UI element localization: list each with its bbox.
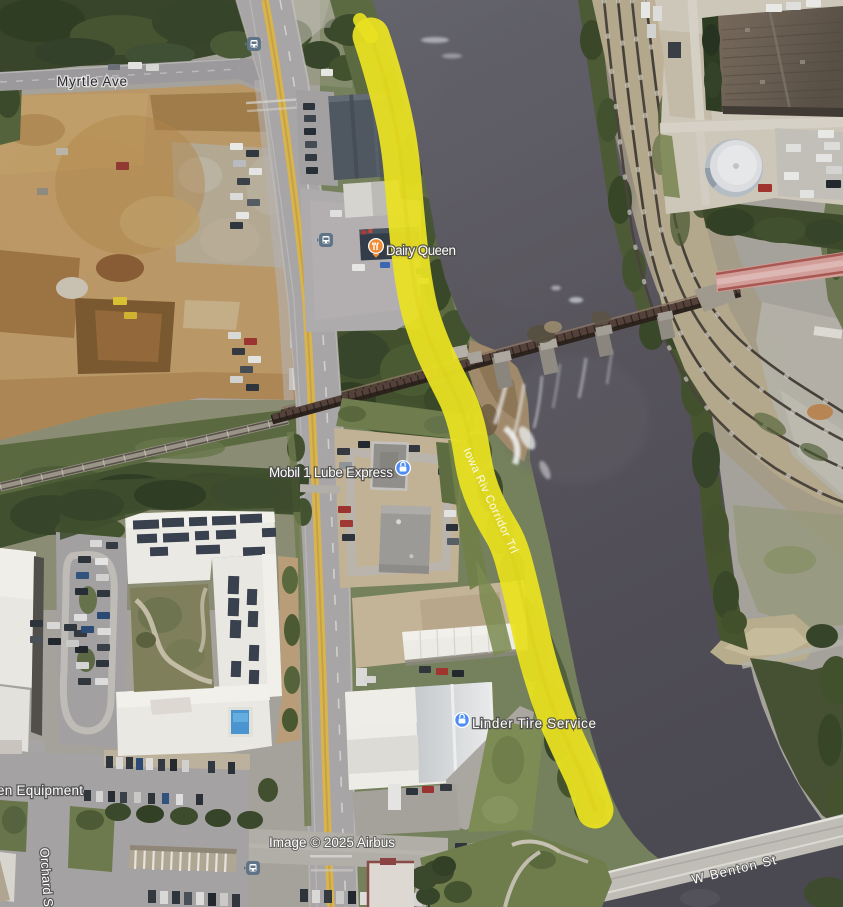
- svg-text:en Equipment: en Equipment: [0, 783, 83, 798]
- svg-text:Dairy Queen: Dairy Queen: [386, 243, 456, 258]
- svg-text:Myrtle Ave: Myrtle Ave: [57, 74, 127, 89]
- svg-text:Mobil 1 Lube Express: Mobil 1 Lube Express: [269, 465, 393, 480]
- svg-text:Image © 2025 Airbus: Image © 2025 Airbus: [269, 835, 395, 850]
- svg-text:Linder Tire Service: Linder Tire Service: [472, 716, 596, 731]
